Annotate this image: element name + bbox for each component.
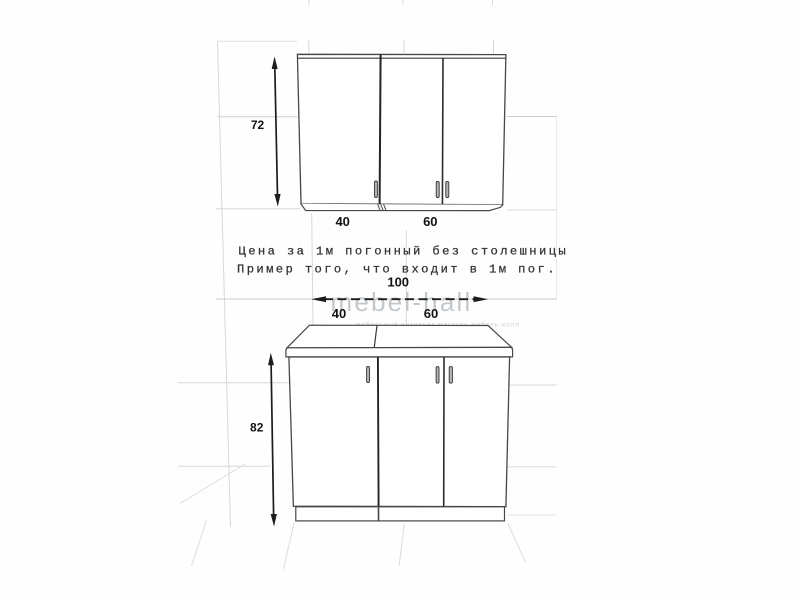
- svg-text:100: 100: [387, 274, 409, 289]
- svg-text:60: 60: [424, 306, 438, 321]
- svg-text:40: 40: [332, 306, 346, 321]
- svg-text:60: 60: [423, 214, 437, 229]
- svg-text:40: 40: [335, 214, 349, 229]
- svg-text:mebel-hall: mebel-hall: [331, 287, 473, 317]
- svg-text:Цена за 1м погонный без столеш: Цена за 1м погонный без столешницы: [239, 244, 569, 258]
- svg-text:82: 82: [250, 421, 264, 435]
- svg-text:72: 72: [251, 118, 265, 132]
